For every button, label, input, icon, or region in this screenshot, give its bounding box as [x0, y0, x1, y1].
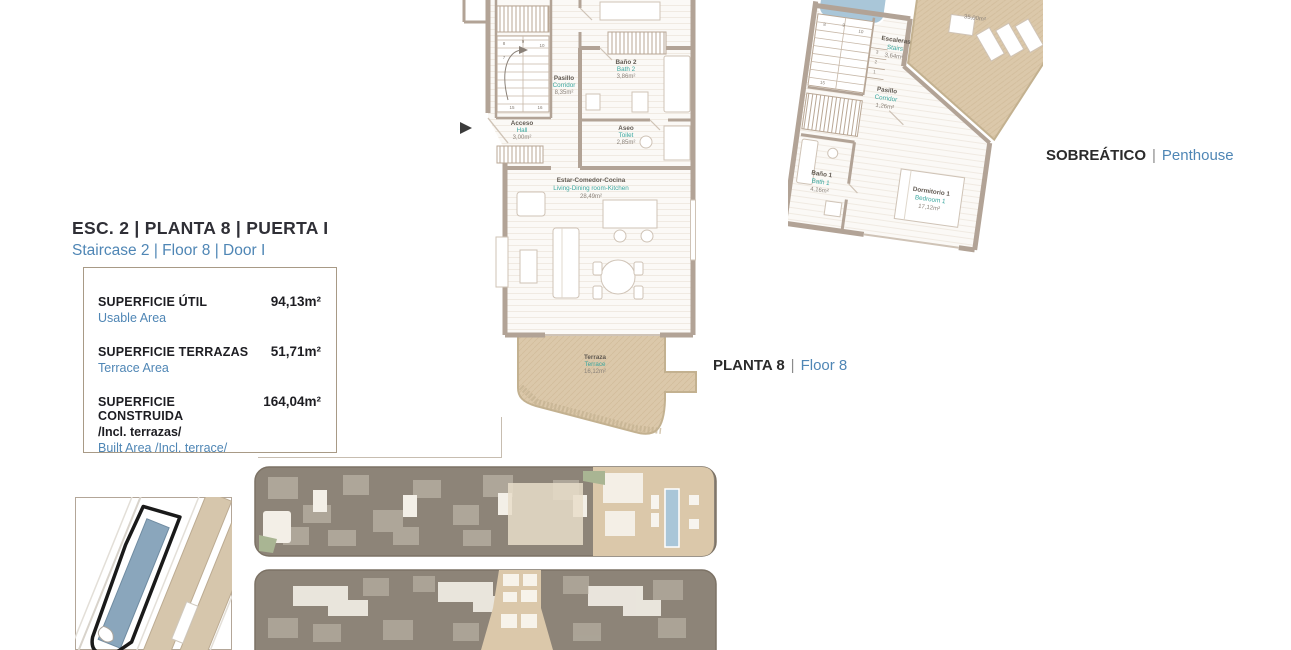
- floor8-level-overview: [253, 568, 718, 650]
- svg-text:Acceso: Acceso: [511, 120, 534, 127]
- svg-text:Corridor: Corridor: [553, 82, 576, 89]
- usable-area-label: SUPERFICIE ÚTIL: [98, 295, 207, 309]
- overview-highlighted-unit: [593, 467, 714, 556]
- dining-table: [601, 260, 635, 294]
- area-summary-box: SUPERFICIE ÚTIL 94,13m² Usable Area SUPE…: [83, 267, 337, 453]
- bed: [608, 32, 666, 54]
- chair: [593, 262, 602, 275]
- room-label-toilet: Aseo Toilet 2,85m²: [617, 125, 636, 146]
- brochure-page: ESC. 2 | PLANTA 8 | PUERTA I Staircase 2…: [0, 0, 1291, 650]
- window-right-wall: [691, 200, 696, 260]
- wardrobe-top: [497, 6, 549, 32]
- svg-text:Aseo: Aseo: [618, 125, 634, 132]
- chair: [634, 286, 643, 299]
- terrace-area-label: SUPERFICIE TERRAZAS: [98, 345, 248, 359]
- svg-text:Estar-Comedor-Cocina: Estar-Comedor-Cocina: [557, 177, 626, 184]
- usable-area-label-en: Usable Area: [98, 311, 321, 325]
- unit-title-es: ESC. 2 | PLANTA 8 | PUERTA I: [72, 218, 328, 239]
- stair-number: 15: [509, 105, 515, 110]
- penthouse-rotated-group: 8 9 10 3 2 1 15: [788, 0, 1043, 258]
- built-area-label-en: Built Area /Incl. terrace/: [98, 441, 321, 455]
- svg-text:Terraza: Terraza: [584, 354, 606, 361]
- stair-number: 10: [539, 43, 545, 48]
- area-row-built: SUPERFICIE CONSTRUIDA 164,04m² /Incl. te…: [98, 394, 321, 455]
- floor8-plan-drawing: 8 9 10 7 15 16: [450, 0, 700, 450]
- stool: [614, 230, 626, 242]
- coffee-table: [520, 250, 537, 283]
- area-row-usable: SUPERFICIE ÚTIL 94,13m² Usable Area: [98, 294, 321, 325]
- svg-text:Hall: Hall: [517, 127, 528, 134]
- frame-line-vertical: [501, 417, 502, 458]
- svg-text:16,12m²: 16,12m²: [584, 369, 606, 375]
- svg-text:28,49m²: 28,49m²: [580, 194, 602, 200]
- overview-pool: [665, 489, 679, 547]
- sideboard: [496, 237, 508, 287]
- chair: [634, 262, 643, 275]
- overview-colored-unit: [508, 483, 583, 545]
- stool: [641, 230, 653, 242]
- hall-wardrobe: [497, 146, 543, 163]
- chair: [593, 286, 602, 299]
- terrace-area-label-en: Terrace Area: [98, 361, 321, 375]
- stair-number: 16: [537, 105, 543, 110]
- penthouse-closet: [802, 93, 862, 136]
- room-label-bath2: Baño 2 Bath 2 3,86m²: [616, 59, 637, 80]
- svg-text:3,86m²: 3,86m²: [617, 74, 636, 80]
- room-label-terrace: Terraza Terrace 16,12m²: [584, 354, 606, 375]
- svg-text:Toilet: Toilet: [619, 132, 634, 139]
- frame-line-horizontal: [258, 457, 502, 458]
- built-area-value: 164,04m²: [263, 394, 321, 409]
- usable-area-value: 94,13m²: [271, 294, 321, 309]
- penthouse-caption: SOBREÁTICO|Penthouse: [1046, 147, 1234, 164]
- unit-title-en: Staircase 2 | Floor 8 | Door I: [72, 242, 328, 260]
- penthouse-plan-drawing: 8 9 10 3 2 1 15: [788, 0, 1043, 280]
- built-area-label-es2: /Incl. terrazas/: [98, 425, 321, 439]
- svg-text:Living-Dining room-Kitchen: Living-Dining room-Kitchen: [553, 185, 629, 192]
- floor8-caption: PLANTA 8|Floor 8: [713, 357, 847, 374]
- built-area-label: SUPERFICIE CONSTRUIDA: [98, 395, 263, 423]
- svg-text:Pasillo: Pasillo: [554, 75, 574, 82]
- room-label-corridor: Pasillo Corridor 8,35m²: [553, 75, 576, 96]
- site-plan-map: [75, 497, 232, 650]
- penthouse-level-overview: [253, 465, 718, 558]
- svg-text:8,35m²: 8,35m²: [555, 90, 574, 96]
- sofa: [553, 228, 579, 298]
- unit-title-block: ESC. 2 | PLANTA 8 | PUERTA I Staircase 2…: [72, 218, 328, 260]
- svg-text:Baño 2: Baño 2: [616, 59, 637, 66]
- svg-text:Bath 2: Bath 2: [617, 66, 636, 73]
- floor8-staircase: 8 9 10 7 15 16: [497, 6, 549, 112]
- area-row-terrace: SUPERFICIE TERRAZAS 51,71m² Terrace Area: [98, 344, 321, 375]
- terrace-area-value: 51,71m²: [271, 344, 321, 359]
- svg-text:Terrace: Terrace: [585, 361, 606, 368]
- kitchen-island: [603, 200, 657, 228]
- entrance-arrow-icon: [460, 122, 472, 134]
- armchair: [517, 192, 545, 216]
- svg-text:3,00m²: 3,00m²: [513, 135, 532, 141]
- svg-text:2,85m²: 2,85m²: [617, 140, 636, 146]
